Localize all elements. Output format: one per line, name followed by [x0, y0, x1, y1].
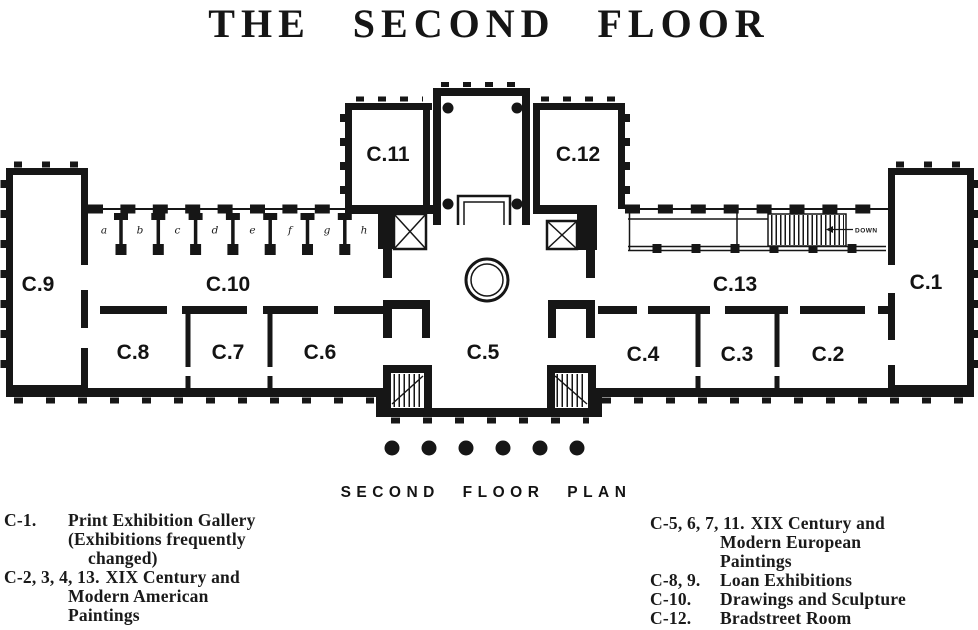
floor-plan: DOWN — [0, 0, 978, 505]
alcove-letter-b: b — [137, 225, 144, 237]
down-label: DOWN — [855, 228, 878, 235]
legend-code: C-2, 3, 4, 13. — [4, 568, 100, 587]
legend-desc: Paintings — [650, 552, 976, 571]
portico-dots — [385, 441, 585, 456]
room-label-c11: C.11 — [366, 143, 410, 166]
legend-code: C-8, 9. — [650, 571, 714, 590]
legend-desc: Paintings — [4, 606, 364, 625]
alcove-letter-h: h — [361, 225, 368, 237]
legend-code: C-10. — [650, 590, 714, 609]
alcove-letter-f: f — [287, 225, 294, 237]
alcove-letter-g: g — [324, 225, 331, 237]
scanned-book-page: THE SECOND FLOOR — [0, 0, 978, 630]
pilaster-ticks — [4, 85, 976, 421]
legend-entry-c2-3-4-13: C-2, 3, 4, 13.XIX Century and — [4, 568, 364, 587]
c13-colonnade — [628, 213, 886, 251]
legend-desc: XIX Century and — [106, 567, 240, 587]
alcove-letter-a: a — [101, 225, 107, 237]
legend-desc: Modern European — [650, 533, 976, 552]
legend-entry-c1: C-1.Print Exhibition Gallery — [4, 511, 364, 530]
legend-code: C-12. — [650, 609, 714, 628]
plan-walls — [6, 88, 974, 417]
legend-desc: Modern American — [4, 587, 364, 606]
elevator-shafts — [394, 214, 577, 249]
room-label-c7: C.7 — [212, 341, 245, 364]
plan-caption: SECOND FLOOR PLAN — [341, 484, 632, 501]
room-label-c8: C.8 — [117, 341, 150, 364]
legend-code: C-5, 6, 7, 11. — [650, 514, 745, 533]
alcove-letter-c: c — [175, 225, 181, 237]
legend-entry-c8-9: C-8, 9.Loan Exhibitions — [650, 571, 976, 590]
ramp: DOWN — [768, 214, 878, 246]
legend-code: C-1. — [4, 511, 62, 530]
rotunda-opening — [466, 259, 508, 301]
room-label-c5: C.5 — [467, 341, 500, 364]
room-label-c10: C.10 — [206, 273, 250, 296]
stairs — [392, 376, 587, 404]
legend-entry-c10: C-10.Drawings and Sculpture — [650, 590, 976, 609]
legend-desc: Drawings and Sculpture — [720, 589, 906, 609]
room-label-c13: C.13 — [713, 273, 757, 296]
central-bay — [443, 103, 523, 226]
alcove-letter-e: e — [249, 225, 255, 237]
legend-desc: XIX Century and — [751, 513, 885, 533]
legend-left: C-1.Print Exhibition Gallery (Exhibition… — [4, 511, 364, 625]
room-label-c3: C.3 — [721, 343, 754, 366]
room-label-c1: C.1 — [910, 271, 943, 294]
alcove-partitions — [114, 217, 352, 250]
legend-desc: changed) — [4, 549, 364, 568]
room-label-c9: C.9 — [22, 273, 55, 296]
legend-desc: Print Exhibition Gallery — [68, 510, 256, 530]
legend-entry-c5-6-7-11: C-5, 6, 7, 11.XIX Century and — [650, 514, 976, 533]
legend-entry-c12: C-12.Bradstreet Room — [650, 609, 976, 628]
alcove-letter-d: d — [212, 225, 219, 237]
legend-desc: Loan Exhibitions — [720, 570, 852, 590]
room-label-c6: C.6 — [304, 341, 337, 364]
room-label-c2: C.2 — [812, 343, 845, 366]
room-label-c12: C.12 — [556, 143, 600, 166]
legend-desc: Bradstreet Room — [720, 608, 851, 628]
room-label-c4: C.4 — [627, 343, 660, 366]
legend-right: C-5, 6, 7, 11.XIX Century and Modern Eur… — [650, 514, 976, 628]
legend-desc: (Exhibitions frequently — [4, 530, 364, 549]
